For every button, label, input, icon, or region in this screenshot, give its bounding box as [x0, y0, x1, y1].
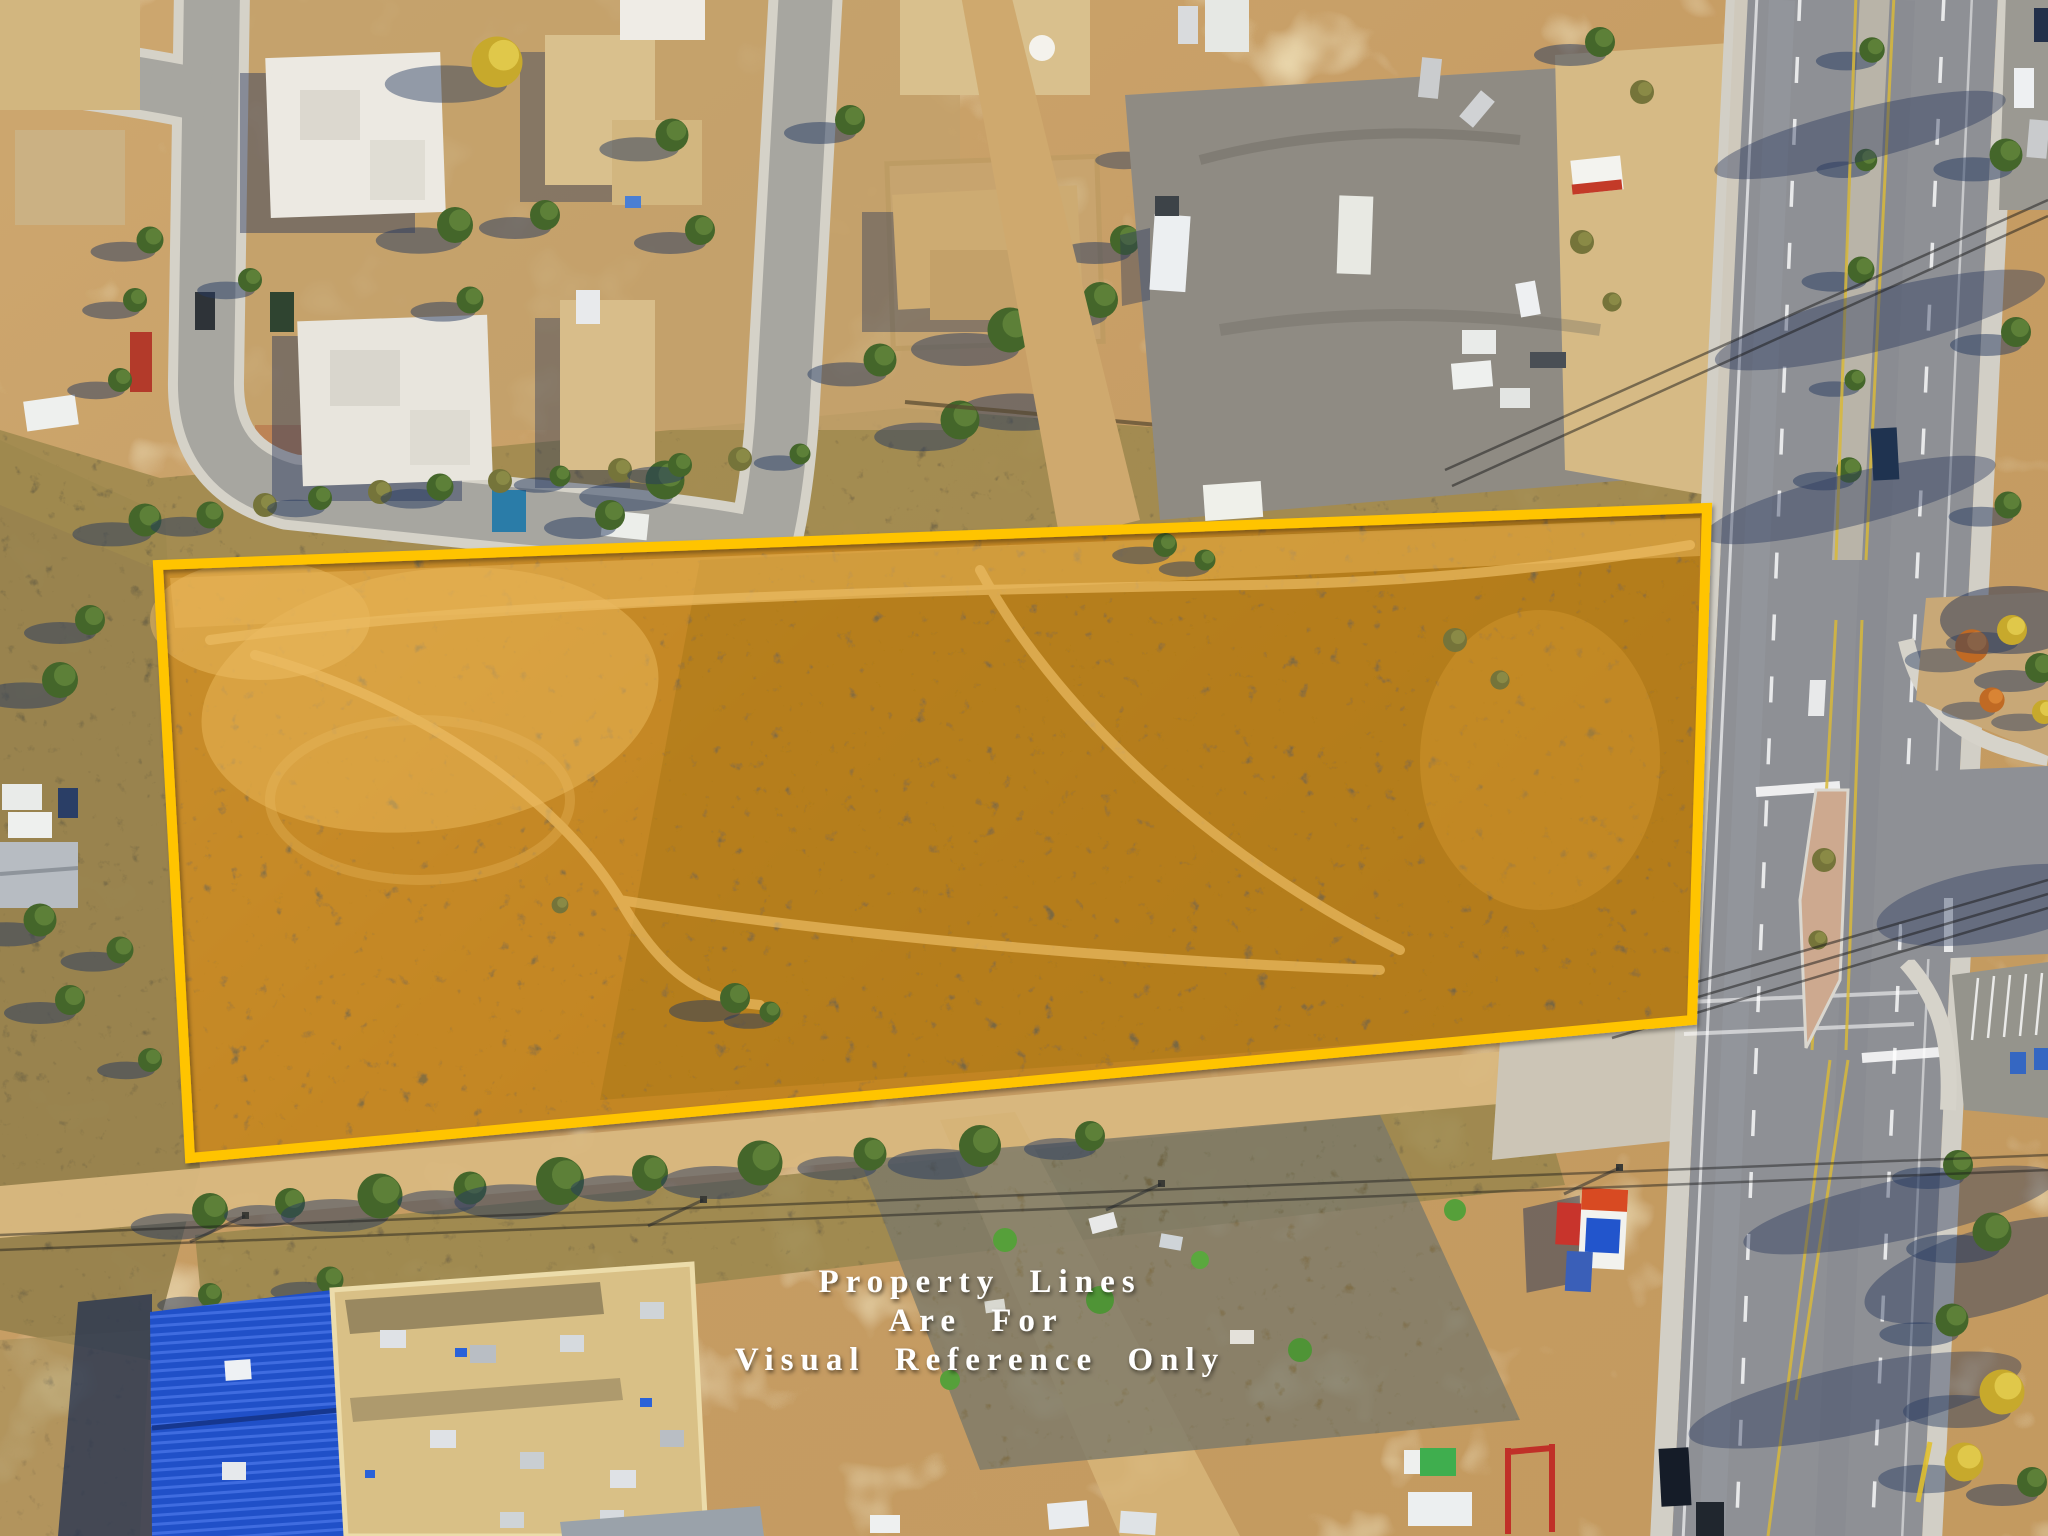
- aerial-photograph: Property Lines Are For Visual Reference …: [0, 0, 2048, 1536]
- white-trailer: [1408, 1492, 1472, 1526]
- turn-arrow: [1808, 680, 1826, 716]
- aerial-photo-stage: Property Lines Are For Visual Reference …: [0, 0, 2048, 1536]
- disclaimer-line-1: Property Lines: [818, 1264, 1141, 1300]
- truck-cab: [1155, 196, 1179, 216]
- food-trailer: [1570, 155, 1623, 194]
- truck-window-band: [1585, 1218, 1621, 1254]
- house-roof: [272, 315, 493, 501]
- red-container: [130, 332, 152, 392]
- disclaimer-line-2: Are For: [888, 1303, 1063, 1339]
- hvac-unit: [222, 1462, 246, 1480]
- pickup-truck: [1178, 6, 1198, 44]
- rv: [1337, 195, 1374, 274]
- car: [1418, 57, 1442, 99]
- camper: [1500, 388, 1530, 408]
- handicap-stall: [2034, 1048, 2048, 1070]
- car: [2014, 68, 2034, 108]
- car: [576, 290, 600, 324]
- dark-trailer: [1530, 352, 1566, 368]
- hvac-unit: [224, 1359, 251, 1381]
- patio-umbrella: [1029, 35, 1055, 61]
- blue-car: [58, 788, 78, 818]
- camper: [1047, 1500, 1089, 1529]
- box-truck: [2, 784, 42, 810]
- green-box-truck: [1420, 1448, 1456, 1476]
- box-truck: [1451, 360, 1493, 389]
- box-truck: [8, 812, 52, 838]
- camper: [1119, 1511, 1156, 1535]
- rv: [1205, 0, 1249, 52]
- suv: [1871, 427, 1900, 480]
- disclaimer-line-3: Visual Reference Only: [735, 1342, 1225, 1378]
- car: [2026, 119, 2048, 159]
- shed-blue-roof: [492, 490, 526, 532]
- handicap-stall: [2010, 1052, 2026, 1074]
- blue-pickup: [1565, 1251, 1593, 1292]
- stop-bar: [1862, 1052, 1940, 1058]
- southeast-parking-lot: [1952, 962, 2048, 1118]
- suv: [2034, 8, 2048, 42]
- box-truck: [1462, 330, 1496, 354]
- semi-trailer: [1149, 214, 1190, 292]
- northeast-parking: [1999, 0, 2048, 210]
- pickup-truck: [270, 292, 294, 332]
- house-roof: [620, 0, 705, 40]
- old-pavement-apron: [1492, 1022, 1690, 1160]
- dark-car: [1696, 1502, 1724, 1536]
- house-roof: [535, 300, 655, 488]
- truck-cab: [1404, 1450, 1420, 1474]
- blue-tarp: [625, 196, 641, 208]
- camper: [870, 1515, 900, 1533]
- cargo-trailer: [1203, 481, 1263, 521]
- dark-car: [1659, 1447, 1692, 1506]
